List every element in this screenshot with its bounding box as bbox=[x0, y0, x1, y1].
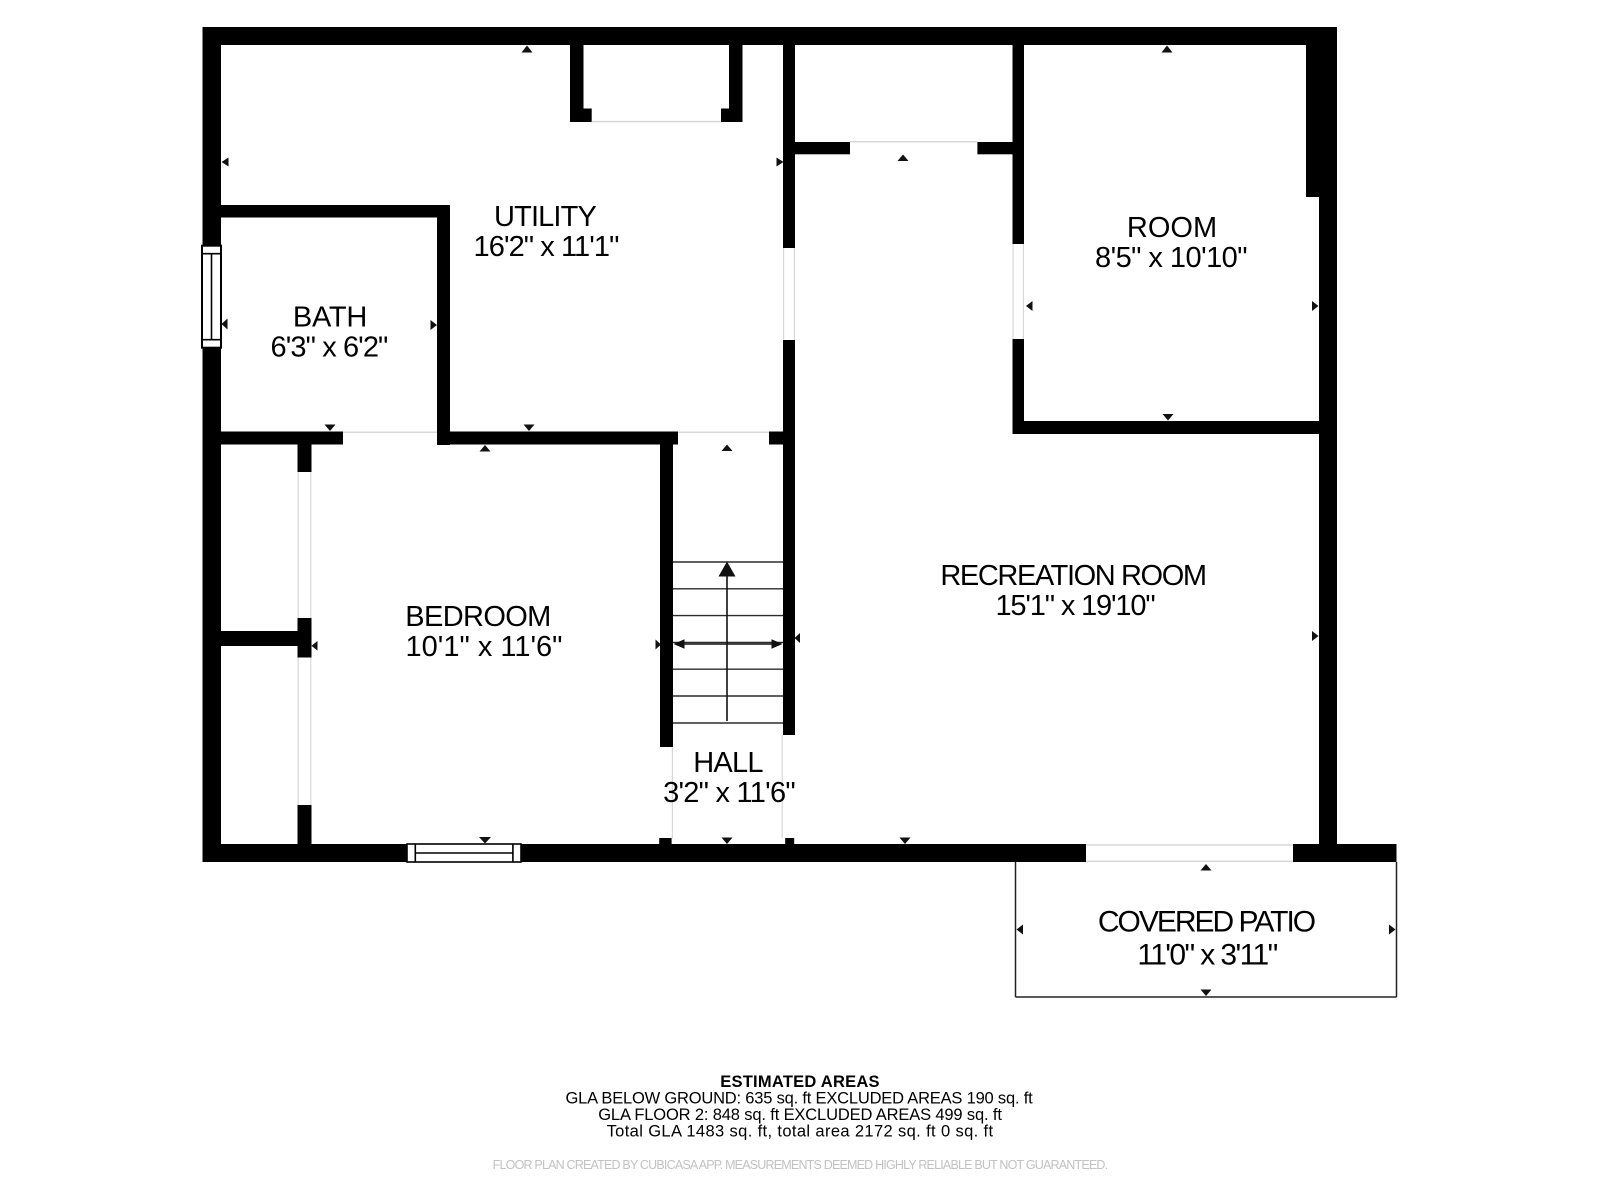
svg-text:11'0" x 3'11": 11'0" x 3'11" bbox=[1137, 939, 1277, 972]
svg-text:15'1" x 19'10": 15'1" x 19'10" bbox=[995, 590, 1155, 622]
svg-text:ROOM: ROOM bbox=[1127, 212, 1217, 244]
svg-text:UTILITY: UTILITY bbox=[494, 201, 597, 233]
svg-text:10'1" x 11'6": 10'1" x 11'6" bbox=[406, 631, 563, 663]
svg-text:Total GLA 1483 sq. ft, total a: Total GLA 1483 sq. ft, total area 2172 s… bbox=[607, 1123, 994, 1141]
svg-text:BATH: BATH bbox=[293, 302, 367, 334]
svg-text:FLOOR PLAN CREATED BY CUBICASA: FLOOR PLAN CREATED BY CUBICASA APP. MEAS… bbox=[493, 1158, 1108, 1172]
svg-text:8'5" x 10'10": 8'5" x 10'10" bbox=[1095, 242, 1247, 274]
svg-text:RECREATION ROOM: RECREATION ROOM bbox=[940, 560, 1205, 592]
svg-text:16'2" x 11'1": 16'2" x 11'1" bbox=[474, 231, 620, 263]
svg-text:GLA BELOW GROUND: 635 sq. ft E: GLA BELOW GROUND: 635 sq. ft EXCLUDED AR… bbox=[566, 1090, 1034, 1108]
svg-text:3'2" x 11'6": 3'2" x 11'6" bbox=[663, 777, 795, 809]
svg-text:COVERED PATIO: COVERED PATIO bbox=[1098, 906, 1315, 939]
svg-text:HALL: HALL bbox=[693, 747, 763, 779]
svg-text:BEDROOM: BEDROOM bbox=[405, 601, 550, 633]
svg-text:ESTIMATED AREAS: ESTIMATED AREAS bbox=[720, 1073, 880, 1091]
svg-text:GLA FLOOR 2: 848 sq. ft EXCLUD: GLA FLOOR 2: 848 sq. ft EXCLUDED AREAS 4… bbox=[598, 1106, 1002, 1124]
svg-text:6'3" x 6'2": 6'3" x 6'2" bbox=[271, 332, 388, 364]
